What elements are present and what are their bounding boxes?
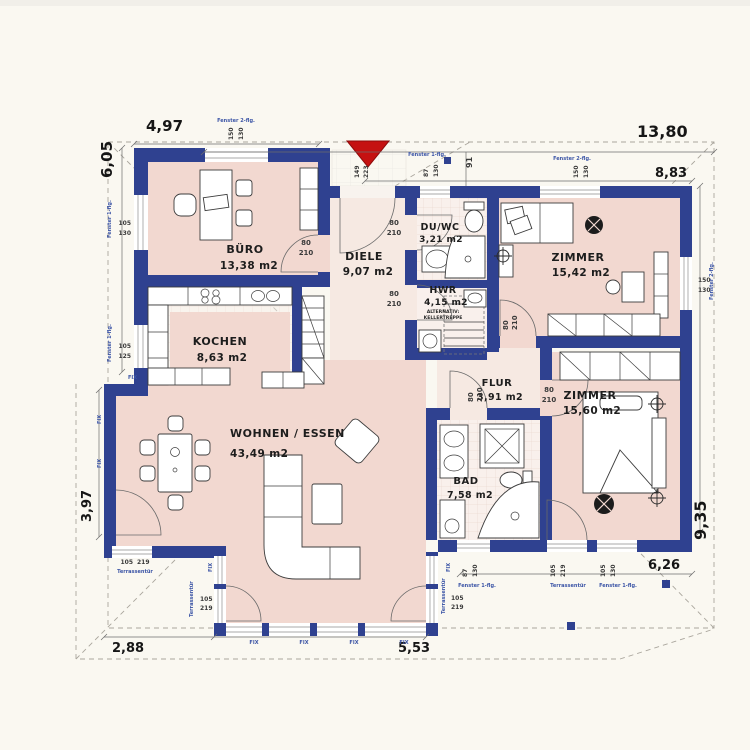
glass-wall-west (214, 556, 226, 623)
visitor-chair (236, 210, 252, 226)
room-duwc-area: 3,21 m2 (419, 235, 463, 245)
sideboard (654, 252, 668, 318)
room-wohnen-label: WOHNEN / ESSEN (230, 427, 345, 440)
room-bad-area: 7,58 m2 (447, 490, 493, 501)
coffee-table (312, 484, 342, 524)
svg-text:130: 130 (433, 164, 440, 177)
svg-text:80: 80 (389, 290, 399, 298)
kitchen-counter-bottom (148, 368, 230, 385)
terrace-door-west (112, 546, 152, 558)
plant-icon (594, 494, 614, 514)
svg-text:80: 80 (467, 392, 475, 402)
window-bad-bottom (457, 540, 490, 552)
glass-wall-south (226, 623, 426, 636)
terrace-post (662, 580, 670, 588)
toilet-icon (465, 210, 483, 232)
room-wohnen-area: 43,49 m2 (230, 448, 288, 460)
toilet-tank (464, 202, 484, 210)
svg-text:210: 210 (511, 315, 519, 330)
entrance-door-width: 149 (354, 165, 361, 178)
svg-text:FIX: FIX (128, 375, 137, 381)
svg-text:Fenster 2-flg.: Fenster 2-flg. (553, 156, 591, 162)
room-duwc-label: DU/WC (420, 222, 459, 233)
svg-text:Fenster 1-flg.: Fenster 1-flg. (599, 583, 637, 589)
svg-text:105: 105 (120, 559, 133, 566)
window-buero-top (205, 148, 268, 162)
dim-right-wing-width: 8,83 (655, 166, 687, 181)
room-zimmer1-label: ZIMMER (552, 251, 605, 264)
dim-terrace-width: 2,88 (112, 641, 144, 656)
room-zimmer1-area: 15,42 m2 (552, 267, 610, 279)
svg-text:80: 80 (502, 320, 510, 330)
svg-text:130: 130 (583, 165, 590, 178)
svg-text:Terrassentür: Terrassentür (441, 578, 447, 614)
desk-monitor (203, 194, 229, 210)
svg-text:210: 210 (542, 396, 557, 404)
room-bad-label: BAD (453, 476, 478, 487)
svg-text:105: 105 (200, 596, 213, 603)
room-hwr-label: HWR (429, 285, 456, 296)
svg-text:125: 125 (118, 353, 131, 360)
svg-text:130: 130 (472, 564, 479, 577)
washing-machine-icon (419, 330, 441, 352)
terrace-door-zimmer2 (547, 540, 587, 552)
svg-text:219: 219 (451, 604, 464, 611)
dining-chair (140, 440, 155, 455)
svg-text:FIX: FIX (97, 459, 103, 468)
shelf (652, 418, 666, 488)
room-hwr-area: 4,15 m2 (424, 298, 468, 308)
svg-text:Fenster 2-flg.: Fenster 2-flg. (709, 262, 715, 300)
porch-post (444, 157, 451, 164)
floor-plan: BÜRO 13,38 m2 KOCHEN 8,63 m2 WOHNEN / ES… (0, 0, 750, 750)
svg-text:Fenster 1-flg.: Fenster 1-flg. (458, 583, 496, 589)
dining-chair (168, 416, 183, 431)
window-zimmer1-top (540, 186, 600, 198)
room-buero-label: BÜRO (226, 242, 263, 256)
shelf (300, 168, 318, 230)
desk (622, 272, 644, 302)
svg-text:219: 219 (200, 605, 213, 612)
dim-buero-width: 4,97 (146, 117, 183, 135)
room-buero-area: 13,38 m2 (220, 260, 278, 272)
svg-text:219: 219 (560, 564, 567, 577)
room-kochen-label: KOCHEN (193, 335, 247, 348)
svg-text:80: 80 (389, 219, 399, 227)
svg-text:Fenster 2-flg.: Fenster 2-flg. (217, 118, 255, 124)
floor-plan-page: BÜRO 13,38 m2 KOCHEN 8,63 m2 WOHNEN / ES… (0, 0, 750, 750)
svg-text:150: 150 (573, 165, 580, 178)
svg-text:FIX: FIX (97, 415, 103, 424)
svg-text:210: 210 (387, 229, 402, 237)
svg-text:210: 210 (476, 387, 484, 402)
svg-text:FIX: FIX (249, 640, 258, 646)
washbasin-counter (440, 425, 468, 478)
svg-text:105: 105 (550, 564, 557, 577)
room-buero-floor (148, 162, 318, 275)
hwr-note-1: ALTERNATIV: (427, 309, 460, 315)
dim-entrance-offset: 91 (465, 156, 474, 168)
room-kochen-area: 8,63 m2 (197, 352, 248, 364)
dining-chair (140, 466, 155, 481)
svg-text:Fenster 1-flg.: Fenster 1-flg. (408, 152, 446, 158)
window-kochen-left (134, 325, 148, 368)
svg-text:105: 105 (600, 564, 607, 577)
terrace-post (567, 622, 575, 630)
svg-text:210: 210 (387, 300, 402, 308)
kitchen-counter-top (148, 287, 292, 305)
svg-text:Terrassentür: Terrassentür (550, 583, 586, 589)
svg-text:FIX: FIX (299, 640, 308, 646)
room-flur-label: FLUR (482, 378, 513, 389)
svg-text:FIX: FIX (399, 640, 408, 646)
svg-text:105: 105 (118, 220, 131, 227)
svg-text:130: 130 (610, 564, 617, 577)
svg-text:150: 150 (228, 127, 235, 140)
plant-icon (585, 216, 603, 234)
svg-text:130: 130 (238, 127, 245, 140)
hwr-note-2: KELLERTREPPE (424, 315, 463, 321)
svg-text:Terrassentür: Terrassentür (117, 569, 153, 575)
window-zimmer1-right (680, 257, 692, 310)
window-zimmer2-bottom (597, 540, 637, 552)
window-buero-left (134, 195, 148, 250)
svg-text:87: 87 (423, 169, 430, 177)
room-zimmer2-label: ZIMMER (564, 389, 617, 402)
svg-text:FIX: FIX (208, 563, 214, 572)
dining-table (158, 434, 192, 492)
svg-text:87: 87 (462, 569, 469, 577)
visitor-chair (236, 180, 252, 196)
svg-text:Fenster 1-flg.: Fenster 1-flg. (107, 324, 113, 362)
svg-text:FIX: FIX (349, 640, 358, 646)
svg-text:Fenster 1-flg.: Fenster 1-flg. (107, 200, 113, 238)
dim-right-height: 9,35 (691, 501, 710, 540)
window-entrance-side (420, 186, 450, 198)
dining-chair (195, 440, 210, 455)
room-diele-label: DIELE (345, 250, 383, 263)
glass-wall-east (426, 556, 438, 623)
entrance-door-height: 223 (363, 165, 370, 178)
svg-text:80: 80 (301, 239, 311, 247)
svg-text:105: 105 (118, 343, 131, 350)
svg-text:Terrassentür: Terrassentür (189, 581, 195, 617)
svg-text:219: 219 (137, 559, 150, 566)
office-chair (174, 194, 196, 216)
svg-text:FIX: FIX (446, 563, 452, 572)
dim-buero-height: 6,05 (98, 141, 116, 178)
svg-text:80: 80 (544, 386, 554, 394)
svg-text:210: 210 (299, 249, 314, 257)
svg-text:105: 105 (451, 595, 464, 602)
dim-total-width: 13,80 (637, 122, 688, 141)
dim-bottom-right-width: 6,26 (648, 558, 680, 573)
dim-living-height: 3,97 (80, 490, 95, 522)
dining-chair (195, 466, 210, 481)
svg-text:130: 130 (118, 230, 131, 237)
room-diele-area: 9,07 m2 (343, 266, 394, 278)
dining-chair (168, 495, 183, 510)
room-zimmer2-area: 15,60 m2 (563, 405, 621, 417)
chair (606, 280, 620, 294)
top-border-strip (0, 0, 750, 6)
